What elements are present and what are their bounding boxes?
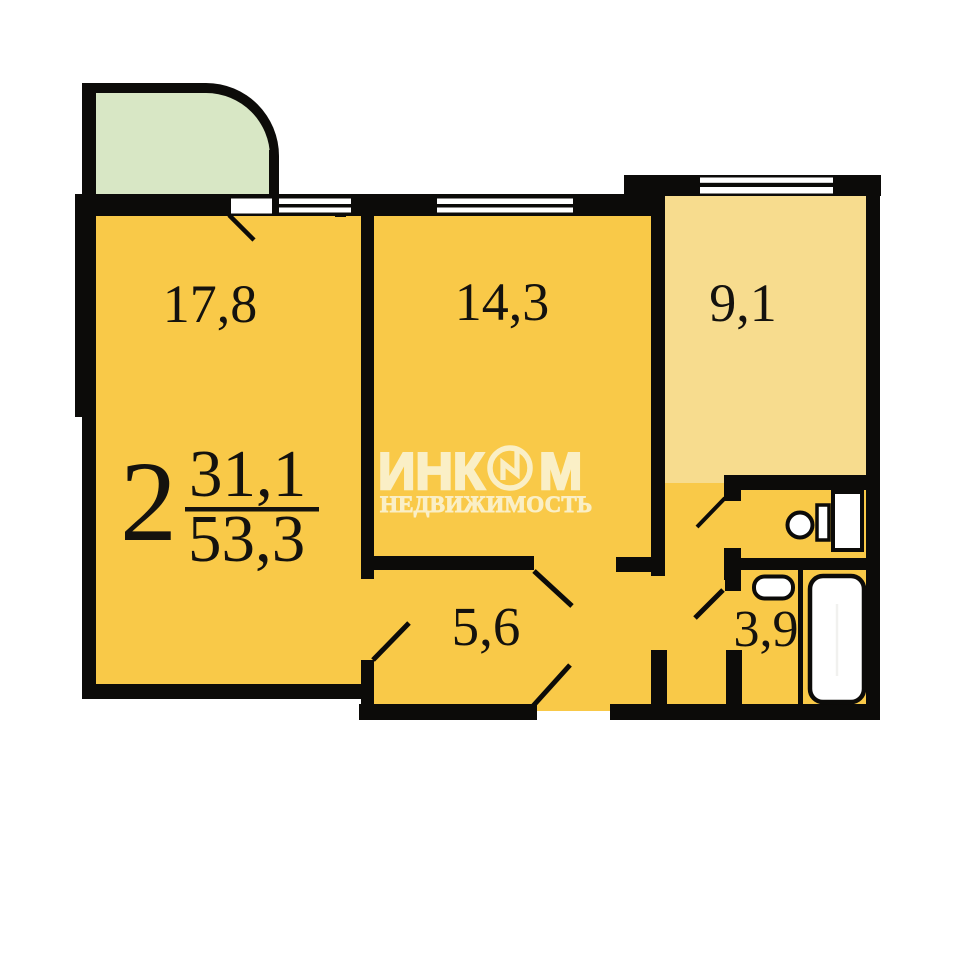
svg-text:31,1: 31,1 xyxy=(189,437,306,511)
svg-text:53,3: 53,3 xyxy=(188,502,305,576)
svg-text:НЕДВИЖИМОСТЬ: НЕДВИЖИМОСТЬ xyxy=(380,492,592,517)
svg-text:3,9: 3,9 xyxy=(734,601,799,658)
svg-text:2: 2 xyxy=(120,438,177,565)
svg-text:9,1: 9,1 xyxy=(709,273,777,333)
svg-text:14,3: 14,3 xyxy=(455,272,550,332)
svg-text:5,6: 5,6 xyxy=(452,596,521,657)
svg-text:17,8: 17,8 xyxy=(163,274,258,334)
